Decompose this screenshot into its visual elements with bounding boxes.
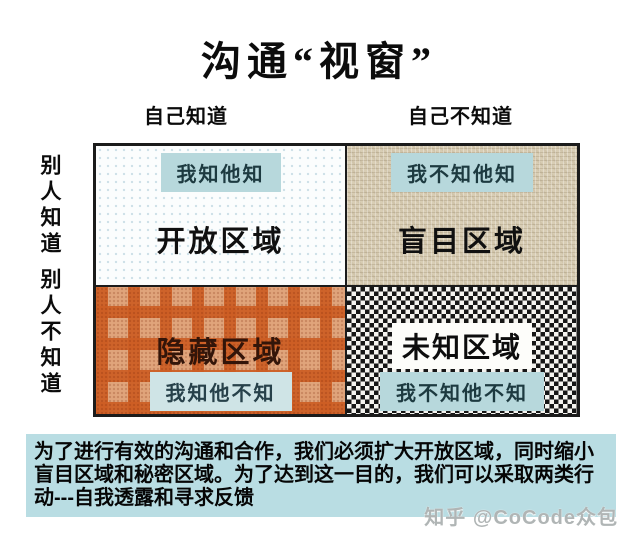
quadrant-blind-area: 我不知他知 盲目区域 (347, 146, 577, 285)
page-title: 沟通“视窗” (0, 40, 638, 84)
johari-window-diagram: 沟通“视窗” 自己知道 自己不知道 别人知道 别人不知道 我知他知 开放区域 我… (0, 0, 638, 540)
column-header-self-unknown: 自己不知道 (408, 100, 513, 129)
zone-label-blind: 盲目区域 (347, 218, 577, 260)
zone-label-hidden: 隐藏区域 (96, 329, 345, 371)
zone-label-open: 开放区域 (96, 218, 345, 260)
column-header-self-known: 自己知道 (144, 100, 228, 129)
quadrant-grid: 我知他知 开放区域 我不知他知 盲目区域 隐藏区域 我知他不知 未知区域 我不知… (93, 143, 580, 417)
quadrant-unknown-area: 未知区域 我不知他不知 (347, 287, 577, 414)
quadrant-open-area: 我知他知 开放区域 (96, 146, 345, 285)
badge-i-dont-know-he-doesnt-know: 我不知他不知 (380, 372, 544, 411)
badge-i-know-he-knows: 我知他知 (161, 153, 281, 192)
zone-label-unknown: 未知区域 (392, 323, 532, 369)
watermark-zhihu: 知乎 @CoCode众包 (0, 501, 638, 530)
badge-i-dont-know-he-knows: 我不知他知 (391, 153, 533, 192)
row-header-others-unknown: 别人不知道 (34, 268, 64, 398)
quadrant-hidden-area: 隐藏区域 我知他不知 (96, 287, 345, 414)
badge-i-know-he-doesnt-know: 我知他不知 (150, 372, 292, 411)
row-header-others-known: 别人知道 (34, 154, 64, 258)
